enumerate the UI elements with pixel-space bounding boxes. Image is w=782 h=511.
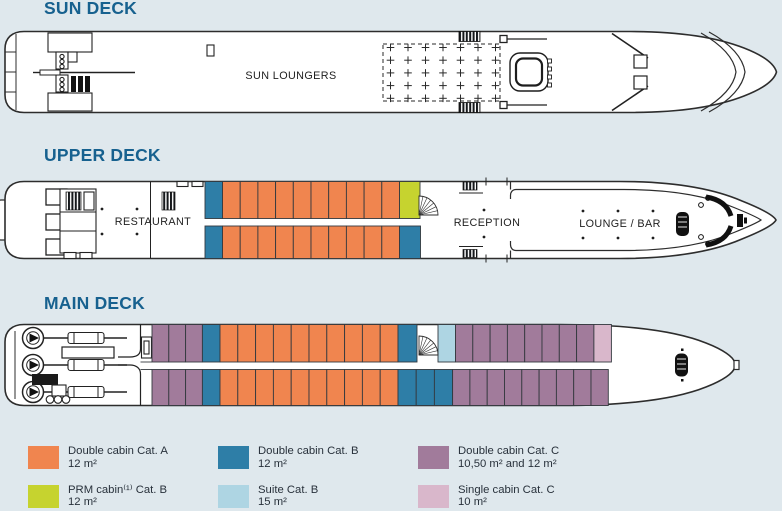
cabin-a (293, 182, 311, 219)
equipment-box (62, 347, 114, 358)
cabin-a (238, 325, 256, 363)
cabin-a (345, 325, 363, 363)
cabin-c (539, 370, 556, 406)
legend-label: Double cabin Cat. C (458, 445, 559, 458)
cabin-a (256, 325, 274, 363)
lounge-bar-label: LOUNGE / BAR (579, 218, 661, 230)
restaurant-label: RESTAURANT (115, 216, 191, 228)
cabin-c (591, 370, 608, 406)
cabin-b (202, 370, 220, 406)
deck-title-upper: UPPER DECK (44, 145, 161, 166)
cabin-c (473, 325, 490, 363)
legend-item: Suite Cat. B15 m² (218, 484, 418, 510)
cabin-c (490, 325, 507, 363)
cabin-b (434, 370, 452, 406)
cabin-a (382, 226, 400, 259)
ship-deck-plan: SUN DECK UPPER DECK MAIN DECK (0, 0, 782, 511)
legend-item: PRM cabin⁽¹⁾ Cat. B12 m² (28, 484, 218, 510)
legend-size: 10,50 m² and 12 m² (458, 458, 559, 471)
cabin-a (258, 182, 276, 219)
cabin-a (223, 226, 241, 259)
cabin-b (205, 182, 223, 219)
cabin-a (291, 370, 309, 406)
cabin-a (276, 226, 294, 259)
cabin-a (258, 226, 276, 259)
deck-title-main: MAIN DECK (44, 293, 145, 314)
cabin-prm (400, 182, 421, 219)
cabin-a (345, 370, 363, 406)
bow-fitting (734, 361, 739, 370)
cabin-c (186, 325, 203, 363)
cabin-a (220, 370, 238, 406)
reception-label: RECEPTION (454, 217, 521, 229)
legend-label: Single cabin Cat. C (458, 484, 555, 497)
cabin-a (309, 370, 327, 406)
cabin-a (240, 182, 258, 219)
cabin-c (556, 370, 573, 406)
legend-size: 12 m² (68, 496, 167, 509)
legend-swatch-a (28, 446, 59, 469)
upper-deck-diagram: RESTAURANT RECEPTION LOUNGE / BAR (0, 176, 782, 264)
legend-swatch-c (418, 446, 449, 469)
cabin-a (309, 325, 327, 363)
funnel-bars (71, 76, 90, 92)
cabin-a (220, 325, 238, 363)
cabin-c (542, 325, 559, 363)
legend: Double cabin Cat. A12 m²Double cabin Cat… (28, 445, 774, 509)
cabin-a (293, 226, 311, 259)
legend-size: 10 m² (458, 496, 555, 509)
sun-loungers-label: SUN LOUNGERS (245, 70, 336, 82)
legend-text: Suite Cat. B15 m² (258, 484, 318, 510)
cabin-a (346, 226, 364, 259)
cabin-suite (438, 325, 456, 363)
legend-text: Single cabin Cat. C10 m² (458, 484, 555, 510)
legend-item: Single cabin Cat. C10 m² (418, 484, 774, 510)
cabin-c1 (594, 325, 612, 363)
cabin-c (169, 325, 186, 363)
stairs-icon (459, 32, 480, 42)
cabin-a (311, 226, 329, 259)
cabin-b (205, 226, 223, 259)
cabin-c (169, 370, 186, 406)
legend-label: Double cabin Cat. A (68, 445, 168, 458)
cabin-c (453, 370, 470, 406)
cabin-c (522, 370, 539, 406)
legend-text: Double cabin Cat. C10,50 m² and 12 m² (458, 445, 559, 471)
wheelhouse (510, 53, 552, 91)
legend-swatch-prm (28, 485, 59, 508)
cabin-a (364, 182, 382, 219)
legend-text: Double cabin Cat. B12 m² (258, 445, 358, 471)
stairs-icon (66, 192, 81, 210)
cabin-a (346, 182, 364, 219)
cabin-a (327, 325, 345, 363)
legend-swatch-c1 (418, 485, 449, 508)
cabin-a (240, 226, 258, 259)
cabin-c (577, 325, 594, 363)
legend-swatch-b (218, 446, 249, 469)
bar-counter (676, 212, 689, 236)
cabin-b (416, 370, 434, 406)
cabin-c (559, 325, 576, 363)
legend-label: Double cabin Cat. B (258, 445, 358, 458)
legend-text: PRM cabin⁽¹⁾ Cat. B12 m² (68, 484, 167, 510)
cabin-b (398, 325, 417, 363)
cabin-c (487, 370, 504, 406)
legend-text: Double cabin Cat. A12 m² (68, 445, 168, 471)
cabin-a (291, 325, 309, 363)
engine-room (23, 328, 128, 403)
sun-deck-diagram: SUN LOUNGERS (0, 28, 782, 116)
deck-hatch (207, 45, 214, 56)
legend-label: PRM cabin⁽¹⁾ Cat. B (68, 484, 167, 497)
cabin-c (525, 325, 542, 363)
cabin-c (470, 370, 487, 406)
cabin-b (400, 226, 421, 259)
tank-box (32, 374, 58, 385)
cabin-a (380, 325, 398, 363)
cabin-a (273, 370, 291, 406)
cabin-c (152, 325, 169, 363)
cabin-a (364, 226, 382, 259)
cabin-a (311, 182, 329, 219)
cabin-c (507, 325, 524, 363)
main-deck-diagram (0, 318, 782, 410)
cabin-a (238, 370, 256, 406)
cabin-a (380, 370, 398, 406)
legend-size: 12 m² (258, 458, 358, 471)
legend-item: Double cabin Cat. B12 m² (218, 445, 418, 471)
cabin-a (327, 370, 345, 406)
legend-size: 15 m² (258, 496, 318, 509)
cabin-a (223, 182, 241, 219)
cabin-a (382, 182, 400, 219)
legend-size: 12 m² (68, 458, 168, 471)
cabin-b (202, 325, 220, 363)
cabin-c (152, 370, 169, 406)
cabin-b (398, 370, 416, 406)
legend-item: Double cabin Cat. A12 m² (28, 445, 218, 471)
cabin-c (505, 370, 522, 406)
cabin-a (329, 226, 347, 259)
cabin-c (574, 370, 591, 406)
cabin-a (362, 370, 380, 406)
cabin-a (273, 325, 291, 363)
stairs-icon (162, 192, 175, 210)
stairs-icon (459, 103, 480, 113)
legend-item: Double cabin Cat. C10,50 m² and 12 m² (418, 445, 774, 471)
cabin-a (256, 370, 274, 406)
cabin-a (276, 182, 294, 219)
legend-swatch-suite (218, 485, 249, 508)
stair-shaft (142, 337, 152, 358)
deck-title-sun: SUN DECK (44, 0, 137, 19)
legend-label: Suite Cat. B (258, 484, 318, 497)
cabin-c (186, 370, 203, 406)
cabin-c (456, 325, 473, 363)
cabin-a (329, 182, 347, 219)
cabin-a (362, 325, 380, 363)
